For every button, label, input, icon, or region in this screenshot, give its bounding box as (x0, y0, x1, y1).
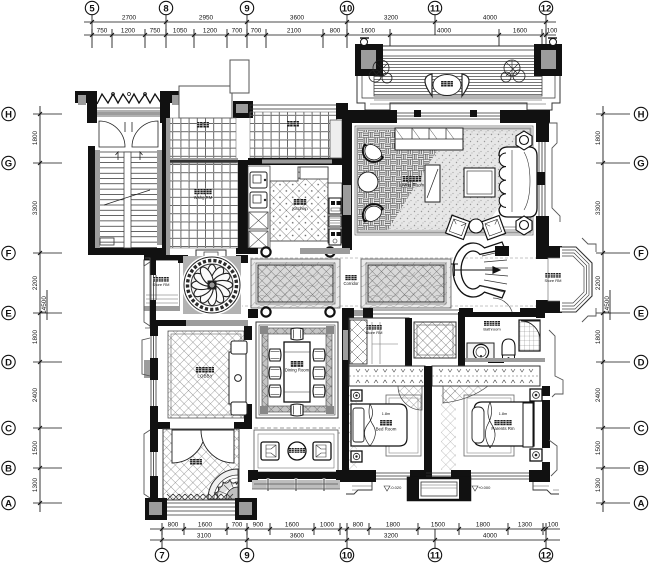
svg-text:Corridor: Corridor (343, 281, 359, 286)
svg-text:11: 11 (430, 4, 441, 15)
svg-text:11: 11 (430, 551, 441, 562)
svg-text:1200: 1200 (203, 28, 218, 35)
svg-text:Store RM: Store RM (545, 278, 562, 283)
svg-text:12: 12 (541, 551, 552, 562)
svg-text:Store RM: Store RM (366, 330, 383, 335)
svg-text:1500: 1500 (32, 440, 39, 455)
svg-text:7: 7 (159, 551, 164, 562)
svg-text:A: A (638, 499, 645, 510)
svg-text:2200: 2200 (32, 275, 39, 290)
svg-text:2400: 2400 (595, 387, 602, 402)
svg-text:9: 9 (244, 4, 249, 15)
svg-text:Kitchen: Kitchen (292, 206, 308, 211)
svg-text:D: D (638, 358, 645, 369)
svg-text:E: E (5, 309, 11, 320)
svg-text:A: A (5, 499, 12, 510)
svg-text:4000: 4000 (483, 533, 498, 540)
svg-text:12: 12 (541, 4, 552, 15)
svg-text:1800: 1800 (32, 130, 39, 145)
svg-text:2400: 2400 (32, 387, 39, 402)
svg-text:D: D (5, 358, 12, 369)
svg-text:+0.000: +0.000 (478, 485, 491, 490)
svg-text:2950: 2950 (199, 15, 214, 22)
svg-text:1600: 1600 (198, 522, 213, 529)
svg-text:14500: 14500 (604, 296, 611, 314)
svg-text:1800: 1800 (386, 522, 401, 529)
svg-text:2200: 2200 (595, 275, 602, 290)
svg-text:1200: 1200 (121, 28, 136, 35)
svg-text:G: G (5, 159, 12, 170)
svg-text:F: F (6, 249, 12, 260)
svg-text:800: 800 (353, 522, 364, 529)
svg-text:Dining Room: Dining Room (285, 368, 310, 373)
svg-text:G: G (637, 159, 644, 170)
svg-text:4000: 4000 (437, 28, 452, 35)
svg-text:800: 800 (168, 522, 179, 529)
svg-text:800: 800 (330, 28, 341, 35)
svg-text:B: B (638, 464, 645, 475)
svg-text:2100: 2100 (287, 28, 302, 35)
svg-text:14500: 14500 (41, 296, 48, 314)
svg-text:3600: 3600 (290, 533, 305, 540)
svg-text:Living Room: Living Room (400, 183, 425, 188)
svg-text:LOBBY: LOBBY (197, 374, 212, 379)
svg-text:C: C (5, 424, 12, 435)
svg-text:9: 9 (244, 551, 249, 562)
svg-text:3300: 3300 (32, 200, 39, 215)
svg-text:3600: 3600 (290, 15, 305, 22)
svg-text:1300: 1300 (518, 522, 533, 529)
svg-text:Store RM: Store RM (153, 282, 170, 287)
svg-text:E: E (638, 309, 644, 320)
svg-text:Parents Rm: Parents Rm (491, 426, 515, 431)
svg-text:1800: 1800 (595, 329, 602, 344)
svg-text:-0.020: -0.020 (390, 485, 402, 490)
svg-text:1500: 1500 (431, 522, 446, 529)
svg-text:5: 5 (89, 4, 95, 15)
svg-text:1000: 1000 (320, 522, 335, 529)
svg-text:1600: 1600 (513, 28, 528, 35)
svg-text:1300: 1300 (32, 477, 39, 492)
svg-text:700: 700 (232, 28, 243, 35)
svg-text:3200: 3200 (384, 15, 399, 22)
svg-text:3100: 3100 (197, 533, 212, 540)
svg-text:2700: 2700 (122, 15, 137, 22)
svg-text:Wshg RM: Wshg RM (194, 195, 213, 200)
svg-text:H: H (5, 110, 12, 121)
svg-text:900: 900 (253, 522, 264, 529)
svg-text:750: 750 (97, 28, 108, 35)
svg-text:1.8m: 1.8m (499, 412, 507, 416)
svg-text:1600: 1600 (361, 28, 376, 35)
svg-text:1500: 1500 (595, 440, 602, 455)
svg-text:750: 750 (150, 28, 161, 35)
svg-text:1600: 1600 (285, 522, 300, 529)
svg-text:Bathroom: Bathroom (483, 326, 501, 331)
svg-text:700: 700 (251, 28, 262, 35)
svg-text:H: H (638, 110, 645, 121)
svg-text:1300: 1300 (595, 477, 602, 492)
svg-text:10: 10 (342, 551, 353, 562)
svg-text:100: 100 (548, 522, 559, 529)
svg-text:700: 700 (232, 522, 243, 529)
svg-text:10: 10 (342, 4, 353, 15)
svg-text:1050: 1050 (173, 28, 188, 35)
svg-text:4000: 4000 (483, 15, 498, 22)
svg-text:1800: 1800 (32, 329, 39, 344)
svg-text:3200: 3200 (384, 533, 399, 540)
svg-text:F: F (638, 249, 644, 260)
svg-text:3300: 3300 (595, 200, 602, 215)
svg-text:100: 100 (547, 28, 558, 35)
svg-text:B: B (5, 464, 12, 475)
svg-text:1800: 1800 (476, 522, 491, 529)
svg-text:Bed Room: Bed Room (376, 426, 397, 431)
svg-text:8: 8 (163, 4, 168, 15)
svg-text:1.8m: 1.8m (382, 412, 390, 416)
svg-text:1800: 1800 (595, 130, 602, 145)
svg-text:C: C (638, 424, 645, 435)
